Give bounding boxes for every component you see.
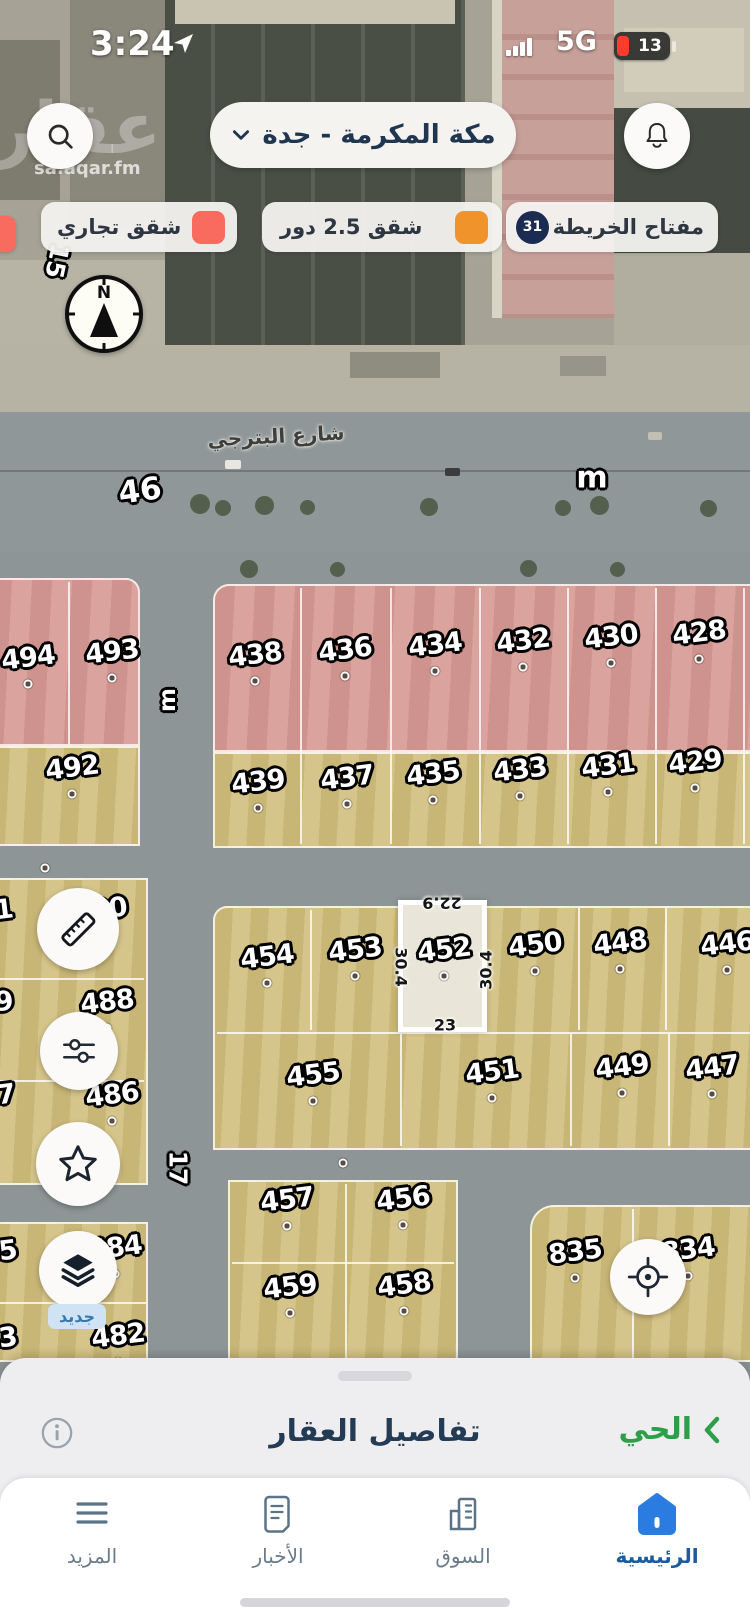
layers-icon — [57, 1249, 99, 1291]
legend-chip-commercial[interactable]: شقق تجاري — [41, 202, 237, 252]
layers-button[interactable] — [39, 1231, 117, 1309]
app-screen: 4944934384364344324304284924394374354334… — [0, 0, 750, 1624]
clock: 3:24 — [90, 24, 175, 64]
sidewalk-clutter — [350, 352, 440, 378]
battery-nub — [672, 41, 676, 52]
news-icon — [254, 1490, 302, 1538]
target-icon — [625, 1254, 671, 1300]
car — [445, 468, 460, 476]
nav-more-label: المزيد — [27, 1544, 157, 1568]
battery-level-red — [617, 36, 629, 56]
location-arrow-icon — [172, 32, 196, 56]
nav-home-label: الرئيسية — [592, 1544, 722, 1568]
new-feature-badge: جديد — [48, 1304, 106, 1329]
map-key-count-badge: 31 — [516, 211, 549, 244]
neighborhood-link[interactable]: الحي — [618, 1412, 724, 1447]
parcel-block-457[interactable] — [228, 1180, 458, 1362]
chevron-left-icon — [700, 1414, 724, 1446]
nav-more[interactable]: المزيد — [27, 1490, 157, 1568]
network-type: 5G — [556, 26, 597, 57]
nav-home[interactable]: الرئيسية — [592, 1490, 722, 1568]
compass[interactable]: N — [65, 275, 143, 353]
buildings-icon — [439, 1490, 487, 1538]
compass-needle — [90, 303, 118, 337]
city-selector[interactable]: مكة المكرمة - جدة — [210, 102, 516, 168]
nav-market[interactable]: السوق — [398, 1490, 528, 1568]
car — [648, 432, 662, 440]
legend-chip-2-5-floors[interactable]: شقق 2.5 دور — [262, 202, 502, 252]
map-key-chip[interactable]: 31 مفتاح الخريطة — [506, 202, 718, 252]
menu-icon — [68, 1490, 116, 1538]
search-button[interactable] — [27, 103, 93, 169]
main-road[interactable] — [0, 412, 750, 552]
parcel-block-yellow-right[interactable] — [213, 752, 750, 848]
car — [225, 460, 241, 469]
battery-icon: 13 — [614, 32, 670, 60]
parcel-block-red-left[interactable] — [0, 578, 140, 746]
filters-button[interactable] — [40, 1012, 118, 1090]
measure-button[interactable] — [37, 888, 119, 970]
sheet-drag-handle[interactable] — [338, 1371, 412, 1381]
compass-north-label: N — [97, 283, 111, 303]
nav-market-label: السوق — [398, 1544, 528, 1568]
selected-parcel-452[interactable] — [398, 900, 487, 1032]
home-indicator[interactable] — [240, 1598, 510, 1607]
nav-news[interactable]: الأخبار — [213, 1490, 343, 1568]
chevron-down-icon — [230, 124, 252, 146]
notifications-button[interactable] — [624, 103, 690, 169]
bottom-nav: الرئيسية السوق الأخبار المزيد — [0, 1478, 750, 1624]
bell-icon — [640, 119, 674, 153]
home-icon — [633, 1490, 681, 1538]
neighborhood-link-label: الحي — [618, 1412, 692, 1447]
locate-me-button[interactable] — [610, 1239, 686, 1315]
legend-color-red — [192, 211, 225, 244]
nav-news-label: الأخبار — [213, 1544, 343, 1568]
search-icon — [44, 120, 76, 152]
lane-line — [0, 470, 750, 472]
legend-chip-label: شقق 2.5 دور — [280, 215, 422, 239]
building-block — [614, 253, 750, 348]
sidewalk-clutter — [560, 356, 606, 376]
parcel-block-yellow-left[interactable] — [0, 746, 140, 846]
map-key-label: مفتاح الخريطة — [553, 215, 704, 239]
ruler-icon — [56, 907, 100, 951]
parcel-block-red-right[interactable] — [213, 584, 750, 752]
sliders-icon — [58, 1030, 100, 1072]
cellular-signal-icon — [506, 36, 536, 56]
battery-percent: 13 — [632, 36, 668, 56]
favorites-button[interactable] — [36, 1122, 120, 1206]
city-selector-label: مكة المكرمة - جدة — [262, 120, 495, 150]
legend-chip-partial[interactable] — [0, 216, 16, 252]
status-bar: 3:24 5G 13 — [0, 0, 750, 80]
legend-chip-label: شقق تجاري — [57, 215, 181, 239]
legend-color-orange — [455, 211, 488, 244]
star-icon — [55, 1141, 101, 1187]
